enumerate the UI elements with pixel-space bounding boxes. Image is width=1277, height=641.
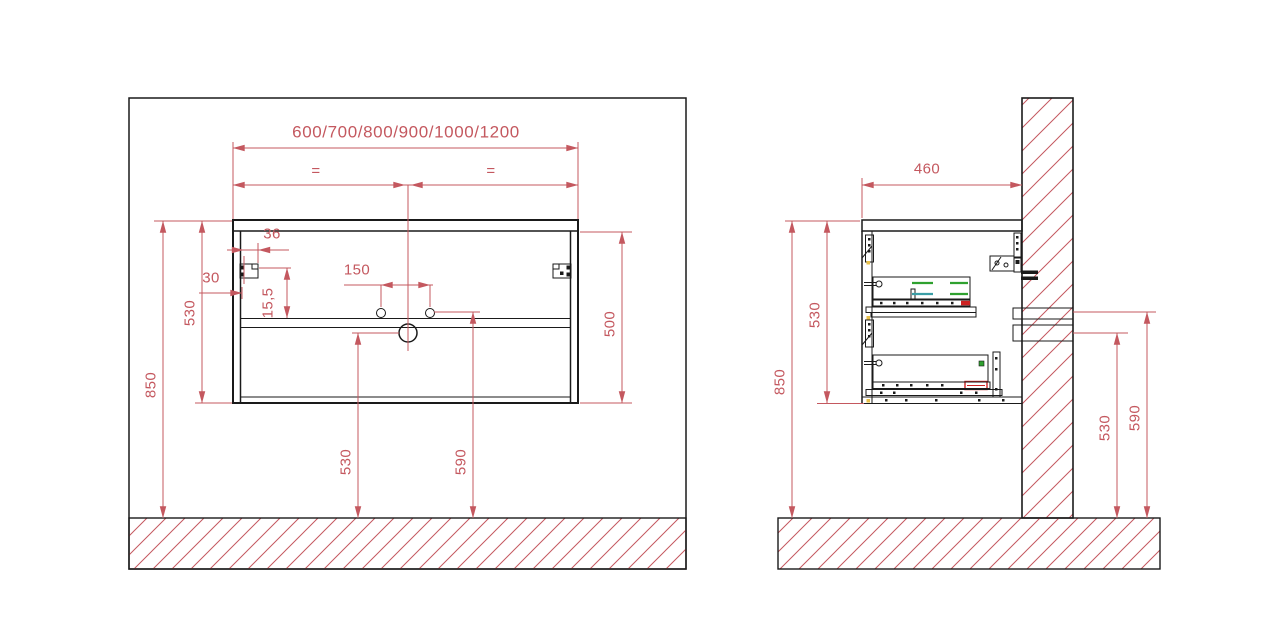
screw-dot [906,302,909,305]
rail-plate-lower [871,313,976,318]
bracket-screw [567,266,571,270]
screw-dot [896,384,899,387]
dim-label-bracket-drop: 15,5 [260,288,277,319]
dim-label-depth: 460 [914,161,940,178]
bracket-screw [560,272,564,276]
screw-dot [995,388,998,391]
screw-dot [995,357,998,360]
wall-bracket-right [553,264,571,278]
adjuster-knob [876,360,882,366]
floor-hatch-side [778,518,1160,569]
technical-drawing-page: 600/700/800/900/1000/1200 = = 36 30 [0,0,1277,641]
bracket-slash [992,257,1001,270]
bracket-body [990,256,1014,271]
screw-dot [951,302,954,305]
dim-label-inner-height: 500 [602,311,619,337]
wall-screw [1021,277,1038,281]
screw-dot [868,329,871,332]
rail-plate [866,390,1002,396]
screw-dot [921,302,924,305]
latch-green [979,361,984,366]
dim-supply-height-side: 530 [1073,333,1128,518]
dim-faucet-spacing: 150 [344,262,433,308]
dowel-yellow [867,316,871,320]
dim-label-drain-height-side: 590 [1127,405,1144,431]
dim-label-width-options: 600/700/800/900/1000/1200 [292,123,520,142]
cabinet-outline [233,220,578,403]
dim-width-options: 600/700/800/900/1000/1200 [233,123,578,220]
dim-label-drain-height: 530 [338,449,355,475]
screw-dot [936,302,939,305]
dim-label-bracket-inset: 36 [263,226,281,243]
screw-dot [978,399,981,402]
drawer-box [873,277,970,299]
dim-drain-height-side: 590 [1073,312,1156,518]
screw-dot [910,384,913,387]
dim-bracket-side-offset: 30 [199,270,242,300]
screw-dot [975,392,978,395]
screw-dot [880,302,883,305]
screw-dot [868,323,871,326]
dowel-yellow [867,261,871,265]
screw-dot [1016,236,1019,239]
dim-label-side-offset: 30 [202,270,220,287]
screw-dot [995,368,998,371]
front-view: 600/700/800/900/1000/1200 = = 36 30 [129,98,686,569]
vanity-installation-drawing: 600/700/800/900/1000/1200 = = 36 30 [0,0,1277,641]
screw-dot [868,244,871,247]
dim-label-equal-right: = [486,163,495,180]
bracket-notch [553,264,559,269]
dim-label-outlet-height: 590 [453,449,470,475]
dim-mounting-height-side: 850 [772,221,861,518]
screw-dot [1016,248,1019,251]
wall-bracket-left [240,264,258,278]
dim-cabinet-height-front: 530 [154,221,232,403]
dim-outlet-height-front: 590 [434,312,480,518]
adjuster-knob [876,281,882,287]
countertop-section [862,220,1022,231]
dim-equal-segments: = = [233,163,578,352]
dowel-yellow [867,399,871,403]
cabinet-side-view [862,220,1038,404]
dim-label-cabinet-height: 530 [182,300,199,326]
side-view: 460 850 530 590 530 [772,98,1161,569]
floor-hatch-front [129,518,686,569]
wall-screw [1021,271,1038,275]
dim-depth: 460 [862,161,1022,219]
bracket-hole [1004,263,1008,267]
dim-label-cabinet-height-side: 530 [807,302,824,328]
rail-plate [866,307,976,313]
drawer-box [873,355,988,382]
dim-bracket-drop: 15,5 [259,268,291,318]
screw-dot [868,238,871,241]
dim-label-mounting-height: 850 [143,372,160,398]
lower-drawer [864,352,1002,397]
dim-cabinet-height-side: 530 [807,221,865,404]
dim-inner-height: 500 [580,232,632,403]
screw-dot [882,384,885,387]
soft-close-red [961,301,970,306]
bracket-screw [567,273,571,277]
dim-label-faucet-spacing: 150 [344,262,370,279]
screw-dot [893,302,896,305]
screw-dot [885,399,888,402]
bracket-notch [252,264,258,269]
faucet-hole-right [426,309,435,318]
screw-dot [880,392,883,395]
upper-drawer [864,277,976,317]
screw-dot [1016,242,1019,245]
dim-label-supply-height-side: 530 [1097,415,1114,441]
screw-dot [960,392,963,395]
screw-dot [935,399,938,402]
screw-dot [1002,399,1005,402]
screw-dot [905,399,908,402]
dim-label-equal-left: = [311,163,320,180]
cam-slash-lower [862,333,872,345]
screw-dot [926,384,929,387]
dim-label-mounting-height-side: 850 [772,369,789,395]
hook-screw [1016,260,1020,264]
dim-mounting-height-front: 850 [143,221,164,518]
screw-dot [893,392,896,395]
cabinet-front-view [233,220,578,403]
dim-drain-height-front: 530 [338,333,400,518]
faucet-hole-left [377,309,386,318]
screw-dot [941,384,944,387]
